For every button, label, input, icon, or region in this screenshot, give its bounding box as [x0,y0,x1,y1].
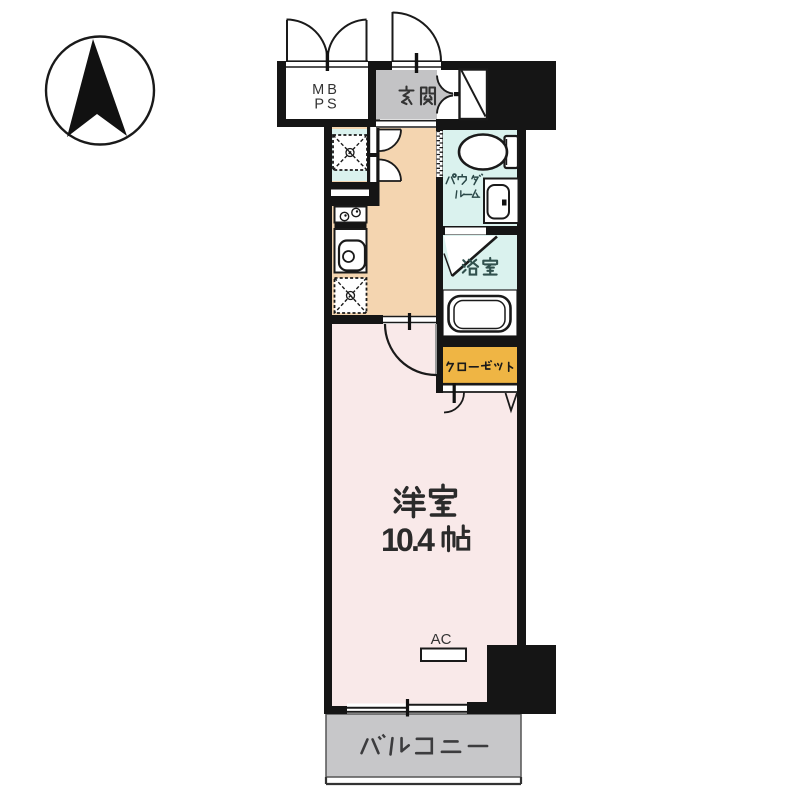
svg-text:10.4: 10.4 [381,522,435,558]
svg-text:AC: AC [431,631,452,648]
svg-text:PS: PS [314,97,339,113]
